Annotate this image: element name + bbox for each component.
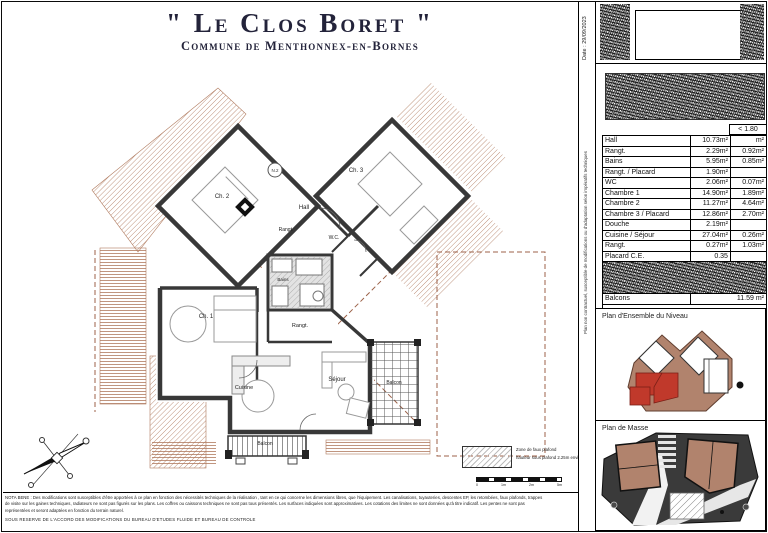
panel-plan-masse: Plan de Masse bbox=[595, 420, 766, 531]
area-lt180-value: 1.89m² bbox=[730, 188, 766, 199]
panel-masse-title: Plan de Masse bbox=[602, 425, 648, 432]
scale-tick: 5m bbox=[557, 483, 562, 487]
date-label: Date : 29/09/2023 bbox=[582, 16, 588, 60]
area-lt180-value: 0.07m² bbox=[730, 178, 766, 189]
room-name: Rangt. bbox=[603, 146, 691, 157]
scale-tick: 1m bbox=[501, 483, 506, 487]
room-name: Hall bbox=[603, 136, 691, 147]
bathroom-block bbox=[270, 257, 330, 308]
room-label-cuisine: Cuisine bbox=[235, 385, 253, 391]
compass-north-icon bbox=[20, 430, 94, 492]
room-name: Chambre 1 bbox=[603, 188, 691, 199]
room-label-hall: Hall bbox=[299, 205, 309, 211]
room-name: Bains bbox=[603, 157, 691, 168]
room-label-bains: Bains bbox=[277, 277, 289, 282]
area-lt180-value bbox=[730, 167, 766, 178]
area-value: 12.86m² bbox=[690, 209, 730, 220]
table-row: Cuisine / Séjour 27.04m² 0.26m² bbox=[603, 230, 767, 241]
room-label-ch2: Ch. 2 bbox=[215, 194, 230, 200]
area-value: 5.95m² bbox=[690, 157, 730, 168]
room-name: Douche bbox=[603, 220, 691, 231]
scale-tick: 2m bbox=[529, 483, 534, 487]
area-value: 11.27m² bbox=[690, 199, 730, 210]
room-name: Balcons bbox=[603, 294, 691, 305]
page-subtitle: Commune de Menthonnex-en-Bornes bbox=[128, 39, 472, 54]
area-value: 2.29m² bbox=[690, 146, 730, 157]
redacted-stamp bbox=[600, 4, 630, 60]
room-label-ch1: Ch. 1 bbox=[199, 314, 214, 320]
legend: Zone de faux plafond hauteur sous plafon… bbox=[462, 446, 585, 468]
disclaimer-line2: de visite sur les gaines techniques, rad… bbox=[5, 501, 579, 507]
redacted-address-block bbox=[605, 73, 765, 120]
room-name: Rangt. bbox=[603, 241, 691, 252]
area-value: 11.59 m² bbox=[690, 294, 766, 305]
unit-badge: N.2 bbox=[268, 163, 282, 177]
scale-strip bbox=[476, 477, 562, 482]
table-row: Rangt. 0.27m² 1.03m² bbox=[603, 241, 767, 252]
area-value: 14.90m² bbox=[690, 188, 730, 199]
side-note: Plan non contractuel, susceptible de mod… bbox=[583, 151, 588, 334]
room-label-balcon-right: Balcon bbox=[386, 380, 402, 386]
area-lt180-value bbox=[730, 220, 766, 231]
svg-text:N.2: N.2 bbox=[271, 168, 279, 173]
cartouche-strip bbox=[595, 2, 766, 64]
room-name: Cuisine / Séjour bbox=[603, 230, 691, 241]
table-row: WC 2.06m² 0.07m² bbox=[603, 178, 767, 189]
room-name: Rangt. / Placard bbox=[603, 167, 691, 178]
area-lt180-value: 0.92m² bbox=[730, 146, 766, 157]
redacted-stamp bbox=[740, 4, 764, 60]
room-label-wc: W.C. bbox=[329, 235, 340, 241]
area-lt180-value: 1.03m² bbox=[730, 241, 766, 252]
area-lt180-value bbox=[730, 251, 766, 262]
table-row-redacted bbox=[603, 262, 767, 294]
table-row: Chambre 2 11.27m² 4.64m² bbox=[603, 199, 767, 210]
table-row: Bains 5.95m² 0.85m² bbox=[603, 157, 767, 168]
area-value: 1.90m² bbox=[690, 167, 730, 178]
legend-line2: hauteur sous plafond 2.25m environ bbox=[516, 454, 585, 462]
disclaimer-line3: représentées et seront adaptées en fonct… bbox=[5, 508, 579, 514]
area-lt180-value: m² bbox=[730, 136, 766, 147]
panel-plan-ensemble: Plan d'Ensemble du Niveau bbox=[595, 308, 766, 422]
redacted-table-rows bbox=[603, 262, 767, 294]
room-label-sejour: Séjour bbox=[328, 377, 345, 383]
panel-ensemble-title: Plan d'Ensemble du Niveau bbox=[602, 313, 688, 320]
table-row: Rangt. 2.29m² 0.92m² bbox=[603, 146, 767, 157]
area-lt180-value: 0.26m² bbox=[730, 230, 766, 241]
disclaimer: NOTA BENE : Des modifications sont susce… bbox=[3, 492, 581, 524]
area-value: 2.19m² bbox=[690, 220, 730, 231]
area-lt180-value: 2.70m² bbox=[730, 209, 766, 220]
area-value: 10.73m² bbox=[690, 136, 730, 147]
scale-tick: 0 bbox=[476, 483, 478, 487]
area-value: 0.27m² bbox=[690, 241, 730, 252]
room-name: Placard C.E. bbox=[603, 251, 691, 262]
room-name: Chambre 2 bbox=[603, 199, 691, 210]
area-table: < 1.80 Hall 10.73m² m² Rangt. 2.29m² 0.9… bbox=[602, 124, 767, 315]
area-value: 27.04m² bbox=[690, 230, 730, 241]
table-row: Rangt. / Placard 1.90m² bbox=[603, 167, 767, 178]
table-row: Balcons 11.59 m² bbox=[603, 294, 767, 305]
table-row: Chambre 3 / Placard 12.86m² 2.70m² bbox=[603, 209, 767, 220]
table-header-lt180: < 1.80 bbox=[729, 124, 767, 135]
plan-sheet: N.2 Ch. 2 Ch. 3 Hall W.C. Rangt. Rangt. … bbox=[0, 0, 768, 533]
room-label-balcon-bottom: Balcon bbox=[257, 441, 273, 447]
table-row: Chambre 1 14.90m² 1.89m² bbox=[603, 188, 767, 199]
table-row: Douche 2.19m² bbox=[603, 220, 767, 231]
empty-cartouche-box bbox=[635, 10, 745, 60]
area-lt180-value: 4.64m² bbox=[730, 199, 766, 210]
room-name: WC bbox=[603, 178, 691, 189]
right-panel: Date : 29/09/2023 Plan non contractuel, … bbox=[578, 2, 766, 531]
table-row: Hall 10.73m² m² bbox=[603, 136, 767, 147]
table-row: Placard C.E. 0.35 bbox=[603, 251, 767, 262]
false-ceiling-hatch-swatch bbox=[462, 446, 512, 468]
room-label-rangt-a: Rangt. bbox=[279, 227, 294, 233]
disclaimer-line4: SOUS RESERVE DE L'ACCORD DES MODIFICATIO… bbox=[5, 517, 579, 523]
building-left bbox=[616, 441, 661, 491]
area-lt180-value: 0.85m² bbox=[730, 157, 766, 168]
area-value: 0.35 bbox=[690, 251, 730, 262]
scale-bar: 0 1m 2m 5m bbox=[476, 477, 562, 487]
mini-plan-ensemble bbox=[606, 325, 756, 417]
area-value: 2.06m² bbox=[690, 178, 730, 189]
room-label-ch3: Ch. 3 bbox=[349, 168, 364, 174]
legend-line1: Zone de faux plafond bbox=[516, 446, 585, 454]
mini-plan-masse bbox=[598, 427, 762, 529]
page-title: " Le Clos Boret " bbox=[128, 8, 472, 38]
room-name: Chambre 3 / Placard bbox=[603, 209, 691, 220]
title-block: " Le Clos Boret " Commune de Menthonnex-… bbox=[128, 8, 472, 54]
room-label-rangt-b: Rangt. bbox=[292, 323, 309, 329]
